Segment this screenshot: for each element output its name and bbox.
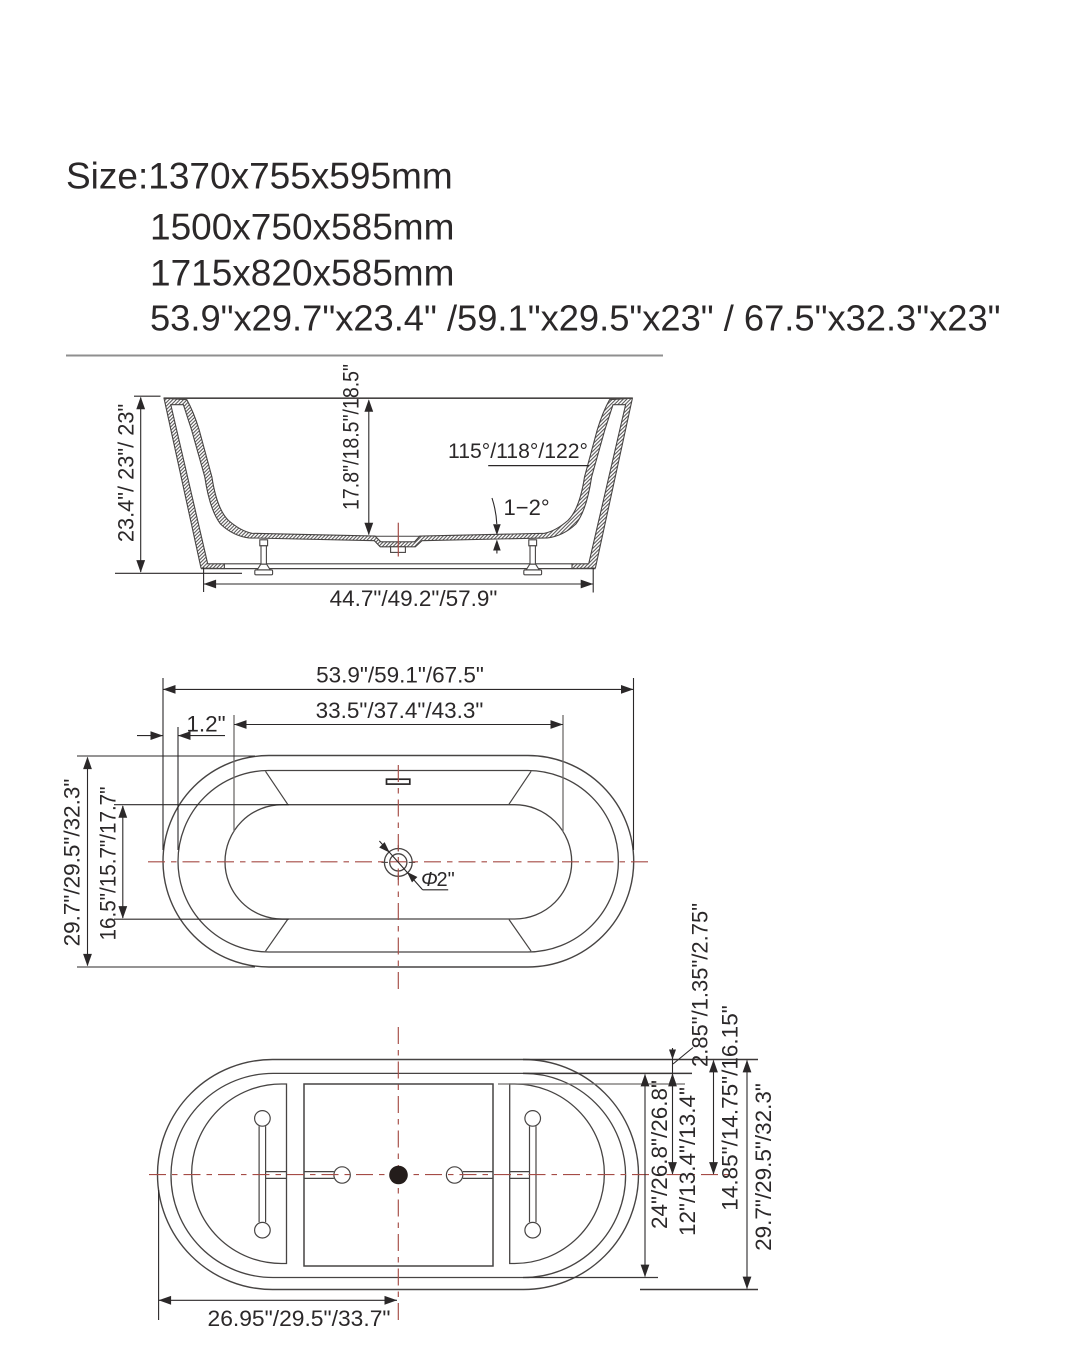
svg-text:53.9"/59.1"/67.5": 53.9"/59.1"/67.5": [316, 663, 484, 688]
svg-text:29.7"/29.5"/32.3": 29.7"/29.5"/32.3": [59, 779, 84, 947]
svg-text:115°/118°/122°: 115°/118°/122°: [448, 439, 588, 463]
svg-text:Φ: Φ: [421, 869, 438, 891]
svg-text:1.2": 1.2": [186, 712, 225, 737]
svg-text:2": 2": [437, 869, 455, 891]
svg-text:33.5"/37.4"/43.3": 33.5"/37.4"/43.3": [316, 698, 484, 723]
svg-text:1715x820x585mm: 1715x820x585mm: [150, 253, 454, 294]
svg-text:23.4"/ 23"/ 23": 23.4"/ 23"/ 23": [114, 404, 139, 542]
svg-text:12"/13.4"/13.4": 12"/13.4"/13.4": [675, 1087, 700, 1236]
svg-text:24"/26.8"/26.8": 24"/26.8"/26.8": [647, 1080, 672, 1229]
svg-text:Size:1370x755x595mm: Size:1370x755x595mm: [66, 156, 453, 197]
svg-text:44.7"/49.2"/57.9": 44.7"/49.2"/57.9": [330, 586, 498, 611]
svg-text:26.95"/29.5"/33.7": 26.95"/29.5"/33.7": [208, 1306, 391, 1331]
svg-text:53.9"x29.7"x23.4" /59.1"x29.5": 53.9"x29.7"x23.4" /59.1"x29.5"x23" / 67.…: [150, 298, 1001, 339]
svg-text:1−2°: 1−2°: [504, 495, 550, 520]
svg-text:17.8"/18.5"/18.5": 17.8"/18.5"/18.5": [339, 364, 364, 510]
svg-text:1500x750x585mm: 1500x750x585mm: [150, 207, 454, 248]
svg-text:14.85"/14.75"/16.15": 14.85"/14.75"/16.15": [717, 1005, 742, 1210]
svg-text:2.85"/1.35"/2.75": 2.85"/1.35"/2.75": [688, 903, 713, 1067]
svg-text:16.5"/15.7"/17.7": 16.5"/15.7"/17.7": [95, 786, 120, 940]
svg-text:29.7"/29.5"/32.3": 29.7"/29.5"/32.3": [751, 1083, 776, 1251]
